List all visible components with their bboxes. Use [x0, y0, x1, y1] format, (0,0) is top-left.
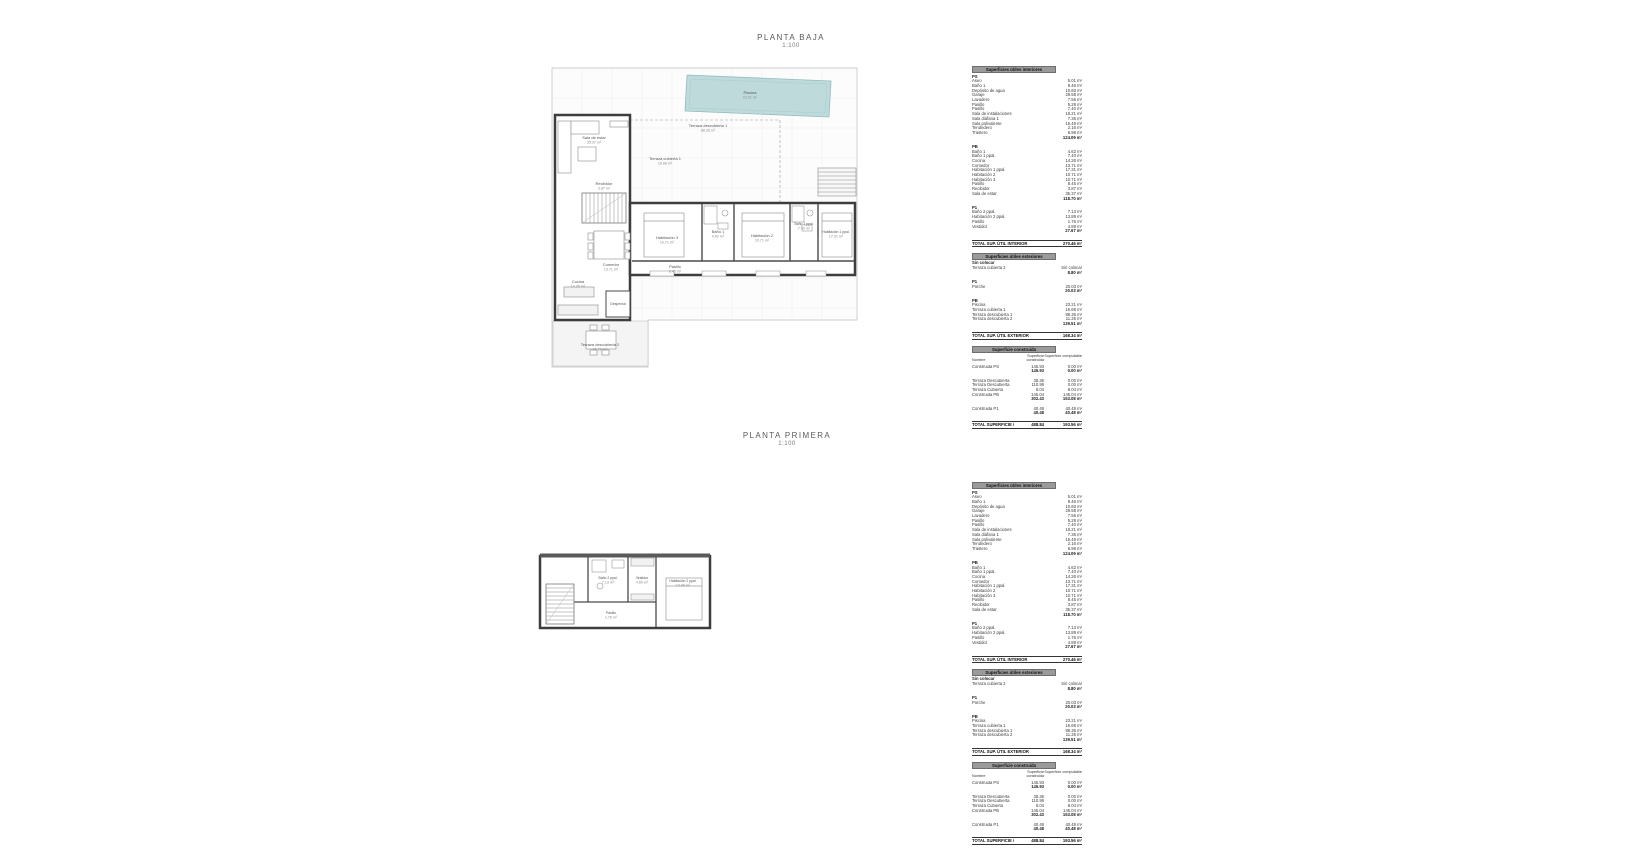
room-name: Sala de estar: [972, 608, 997, 613]
col-header-construida: Superficie construida: [1014, 770, 1044, 778]
subtotal-computable: 40.48 m²: [1044, 411, 1082, 416]
subtotal-spacer: [972, 785, 1014, 790]
total-value: 168.34 m²: [1063, 333, 1082, 338]
group-spacer: [972, 234, 1082, 239]
room-area: 35.37 m²: [587, 141, 602, 145]
group-spacer: [972, 650, 1082, 655]
room-area: 88.36 m²: [701, 129, 716, 133]
room-name: Terraza descubierta 2: [972, 317, 1012, 322]
plan-title-baja: PLANTA BAJA 1:100: [641, 33, 941, 49]
table-total: TOTAL SUP. ÚTIL INTERIOR270.46 m²: [972, 240, 1082, 247]
total-computable: 193.56 m²: [1044, 838, 1082, 843]
table-superficies-utiles-interiores: Superficies útiles interioresPSAseo5.01 …: [972, 482, 1082, 663]
room-label: Comedor: [603, 262, 620, 267]
room-name: Terraza cubierta 2: [972, 682, 1006, 687]
group-subtotal: 40.4840.48 m²: [972, 411, 1082, 416]
group-spacer: [972, 327, 1082, 332]
group-subtotal: 145.930.00 m²: [972, 369, 1082, 374]
room-label: Terraza cubierta 1: [649, 156, 682, 161]
room-label: Habitación 2 ppal.: [669, 579, 696, 583]
column-headers: NombreSuperficie construidaSuperficie co…: [972, 354, 1082, 362]
room-area: 7.13 m²: [602, 581, 615, 585]
room-name: Sala de estar: [972, 192, 997, 197]
room-name: Trastero: [972, 547, 987, 552]
subtotal-computable: 40.48 m²: [1044, 827, 1082, 832]
table-superficies-utiles-interiores: Superficies útiles interioresPSAseo5.01 …: [972, 66, 1082, 247]
room-area: 17.31 m²: [829, 235, 844, 239]
exterior-stairs: [818, 168, 856, 196]
room-name: Terraza descubierta 2: [972, 733, 1012, 738]
room-area: 10.71 m²: [660, 241, 675, 245]
table-title: Superficies útiles interiores: [972, 482, 1056, 489]
area-tables-planta-baja: Superficies útiles interioresPSAseo5.01 …: [972, 66, 1082, 435]
total-label: TOTAL SUP. ÚTIL INTERIOR: [972, 241, 1027, 246]
total-label: TOTAL SUP. ÚTIL EXTERIOR: [972, 749, 1029, 754]
total-label: TOTAL SUP. ÚTIL EXTERIOR: [972, 333, 1029, 338]
table-superficies-utiles-exteriores: Superficies útiles exterioresSin colocar…: [972, 253, 1082, 340]
room-area: 13.89 m²: [676, 584, 691, 588]
subtotal-computable: 153.08 m²: [1044, 813, 1082, 818]
subtotal-spacer: [972, 369, 1014, 374]
group-spacer: [972, 416, 1082, 421]
subtotal-computable: 153.08 m²: [1044, 397, 1082, 402]
room-area: 8.45 m²: [669, 270, 682, 274]
room-name: Vestidor: [972, 641, 987, 646]
group-spacer: [972, 743, 1082, 748]
room-label: Despensa: [610, 302, 625, 306]
plan-scale-text: 1:100: [637, 441, 937, 447]
room-name: Porche: [972, 285, 985, 290]
floor-plan-planta-baja: Sala de estar 35.37 m² Terraza descubier…: [550, 65, 860, 370]
room-label: Terraza descubierta 1: [689, 123, 728, 128]
plan-title-primera: PLANTA PRIMERA 1:100: [637, 431, 937, 447]
group-spacer: [972, 832, 1082, 837]
room-label: Habitación 2: [751, 233, 774, 238]
subtotal-spacer: [972, 411, 1014, 416]
room-label: Vestidor: [636, 576, 649, 580]
group-subtotal: 40.4840.48 m²: [972, 827, 1082, 832]
table-superficies-utiles-exteriores: Superficies útiles exterioresSin colocar…: [972, 669, 1082, 756]
room-label: Recibidor: [596, 181, 614, 186]
table-title: Superficies útiles exteriores: [972, 253, 1056, 260]
room-area: 4.62 m²: [712, 235, 725, 239]
room-area: 10.71 m²: [755, 239, 770, 243]
stairs: [546, 584, 574, 624]
total-computable: 193.56 m²: [1044, 422, 1082, 427]
plan-title-text: PLANTA PRIMERA: [637, 431, 937, 440]
group-subtotal: 302.43153.08 m²: [972, 397, 1082, 402]
total-construida: 488.84: [1014, 838, 1044, 843]
total-label: TOTAL SUPERFICIE CONSTRUIDA:: [972, 838, 1014, 843]
col-header-computable: Superficie computable: [1044, 770, 1082, 778]
room-label: Pasillo: [606, 611, 616, 615]
total-label: TOTAL SUPERFICIE CONSTRUIDA:: [972, 422, 1014, 427]
total-value: 270.46 m²: [1063, 657, 1082, 662]
room-label: Baño 1: [712, 229, 725, 234]
subtotal-construida: 40.48: [1014, 411, 1044, 416]
subtotal-spacer: [972, 827, 1014, 832]
room-area: 16.68 m²: [658, 162, 673, 166]
table-total: TOTAL SUP. ÚTIL EXTERIOR168.34 m²: [972, 332, 1082, 339]
floor-plan-sheet: { "colors": { "pool_fill": "#bedadb", "p…: [0, 0, 1638, 840]
total-label: TOTAL SUP. ÚTIL INTERIOR: [972, 657, 1027, 662]
room-area: 1.76 m²: [605, 616, 618, 620]
table-total: TOTAL SUPERFICIE CONSTRUIDA:488.84193.56…: [972, 837, 1082, 844]
table-superficie-construida: Superficie construidaNombreSuperficie co…: [972, 762, 1082, 845]
table-superficie-construida: Superficie construidaNombreSuperficie co…: [972, 346, 1082, 429]
subtotal-construida: 145.93: [1014, 369, 1044, 374]
table-title: Superficies útiles exteriores: [972, 669, 1056, 676]
total-value: 270.46 m²: [1063, 241, 1082, 246]
plan-title-text: PLANTA BAJA: [641, 33, 941, 42]
room-area: 7.40 m²: [798, 227, 811, 231]
room-name: Trastero: [972, 131, 987, 136]
room-area: 4.89 m²: [636, 581, 649, 585]
room-area: 3.87 m²: [598, 187, 611, 191]
subtotal-construida: 145.93: [1014, 785, 1044, 790]
table-title: Superficie construida: [972, 346, 1056, 353]
room-area: 13.71 m²: [604, 268, 619, 272]
room-label: Habitación 1 ppal.: [822, 230, 849, 234]
room-label: Pasillo: [669, 264, 682, 269]
room-area: 11.26 m²: [593, 348, 608, 352]
subtotal-spacer: [972, 813, 1014, 818]
table-title: Superficie construida: [972, 762, 1056, 769]
group-subtotal: 302.43153.08 m²: [972, 813, 1082, 818]
table-total: TOTAL SUP. ÚTIL INTERIOR270.46 m²: [972, 656, 1082, 663]
subtotal-construida: 40.48: [1014, 827, 1044, 832]
col-header-nombre: Nombre: [972, 774, 1014, 778]
subtotal-construida: 302.43: [1014, 397, 1044, 402]
table-title: Superficies útiles interiores: [972, 66, 1056, 73]
room-name: Vestidor: [972, 225, 987, 230]
room-label: Terraza descubierta 2: [581, 342, 620, 347]
col-header-nombre: Nombre: [972, 358, 1014, 362]
area-tables-planta-primera: Superficies útiles interioresPSAseo5.01 …: [972, 482, 1082, 851]
subtotal-spacer: [972, 397, 1014, 402]
room-area: 14.26 m²: [571, 285, 586, 289]
room-name: Terraza cubierta 2: [972, 266, 1006, 271]
subtotal-computable: 0.00 m²: [1044, 369, 1082, 374]
table-total: TOTAL SUP. ÚTIL EXTERIOR168.34 m²: [972, 748, 1082, 755]
stairs: [582, 193, 626, 223]
room-label: Baño 1 ppal.: [794, 222, 813, 226]
room-label: Sala de estar: [582, 135, 606, 140]
plan-scale-text: 1:100: [641, 43, 941, 49]
room-area: 23.21 m²: [743, 96, 758, 100]
total-construida: 488.84: [1014, 422, 1044, 427]
subtotal-computable: 0.00 m²: [1044, 785, 1082, 790]
room-label: Baño 2 ppal.: [598, 576, 617, 580]
col-header-computable: Superficie computable: [1044, 354, 1082, 362]
section-wall: [540, 554, 710, 558]
room-label: Habitación 3: [656, 235, 679, 240]
col-header-construida: Superficie construida: [1014, 354, 1044, 362]
subtotal-construida: 302.43: [1014, 813, 1044, 818]
room-label: Piscina: [744, 90, 758, 95]
room-name: Porche: [972, 701, 985, 706]
room-label: Cocina: [572, 279, 585, 284]
table-total: TOTAL SUPERFICIE CONSTRUIDA:488.84193.56…: [972, 421, 1082, 428]
total-value: 168.34 m²: [1063, 749, 1082, 754]
dining-table: [588, 231, 630, 259]
floor-plan-planta-primera: Baño 2 ppal. 7.13 m² Vestidor 4.89 m² Ha…: [538, 550, 712, 635]
column-headers: NombreSuperficie construidaSuperficie co…: [972, 770, 1082, 778]
group-subtotal: 145.930.00 m²: [972, 785, 1082, 790]
